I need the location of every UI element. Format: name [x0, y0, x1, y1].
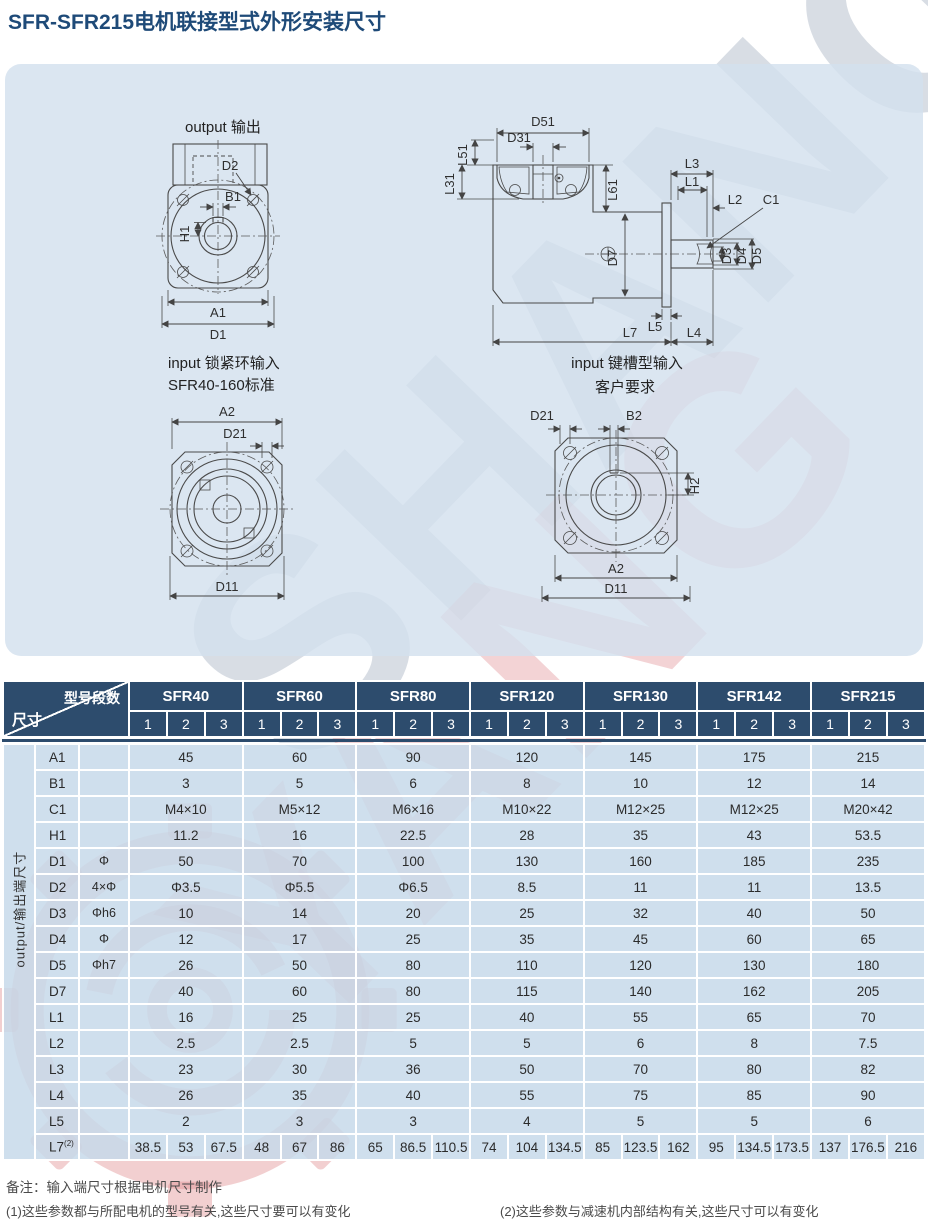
value-cell: 22.5 — [356, 822, 470, 848]
value-cell: 10 — [129, 900, 243, 926]
param-cell: C1 — [35, 796, 79, 822]
model-header-SFR120: SFR120 — [470, 681, 584, 711]
value-cell: 40 — [129, 978, 243, 1004]
symbol-cell: Φh6 — [79, 900, 129, 926]
value-cell: 140 — [584, 978, 698, 1004]
value-cell: 2 — [129, 1108, 243, 1134]
value-cell: 6 — [811, 1108, 925, 1134]
table-row-D7: D7406080115140162205 — [3, 978, 925, 1004]
value-cell: 70 — [243, 848, 357, 874]
value-cell: 145 — [584, 744, 698, 770]
value-cell: 20 — [356, 900, 470, 926]
segment-header: 3 — [773, 711, 811, 737]
spec-table: 型号段数 尺寸 SFR40SFR60SFR80SFR120SFR130SFR14… — [2, 680, 926, 1161]
value-cell: M12×25 — [584, 796, 698, 822]
value-cell: 5 — [584, 1108, 698, 1134]
dim-label-d11: D11 — [605, 581, 628, 596]
segment-header: 2 — [508, 711, 546, 737]
model-header-SFR60: SFR60 — [243, 681, 357, 711]
param-cell: A1 — [35, 744, 79, 770]
segment-header: 3 — [887, 711, 925, 737]
dim-label-a2: A2 — [608, 561, 624, 576]
dim-label-a1: A1 — [210, 305, 226, 320]
dim-label-d31: D31 — [507, 130, 531, 145]
model-header-SFR142: SFR142 — [697, 681, 811, 711]
value-cell: 17 — [243, 926, 357, 952]
value-cell: 5 — [243, 770, 357, 796]
dim-label-l61: L61 — [605, 179, 620, 201]
value-cell: 5 — [356, 1030, 470, 1056]
value-cell: 180 — [811, 952, 925, 978]
value-cell: 8 — [697, 1030, 811, 1056]
dim-label-h1: H1 — [177, 226, 192, 243]
value-cell: 70 — [811, 1004, 925, 1030]
footer-note-1: (1)这些参数都与所配电机的型号有关,这些尺寸要可以有变化 — [6, 1201, 351, 1220]
model-header-SFR130: SFR130 — [584, 681, 698, 711]
drawing-title-line2: 客户要求 — [595, 379, 655, 396]
param-cell: L7(2) — [35, 1134, 79, 1160]
footer-note-2: (2)这些参数与减速机内部结构有关,这些尺寸可以有变化 — [500, 1201, 819, 1220]
value-cell: 5 — [697, 1108, 811, 1134]
dim-label-d2: D2 — [222, 158, 239, 173]
value-cell: 40 — [356, 1082, 470, 1108]
value-cell: 53.5 — [811, 822, 925, 848]
value-cell: 50 — [129, 848, 243, 874]
table-row-L7: L7(2)38.55367.54867866586.5110.574104134… — [3, 1134, 925, 1160]
symbol-cell: 4×Φ — [79, 874, 129, 900]
symbol-cell — [79, 744, 129, 770]
drawing-side-section-view: D51 D31 L51 L31 L61 L3 L1 L2 C1 D7 D3 — [445, 100, 890, 360]
footer-note-main: 备注：输入端尺寸根据电机尺寸制作 — [6, 1176, 222, 1196]
value-cell: 45 — [129, 744, 243, 770]
param-cell: D7 — [35, 978, 79, 1004]
value-cell: 55 — [584, 1004, 698, 1030]
value-cell: 16 — [243, 822, 357, 848]
segment-header: 2 — [622, 711, 660, 737]
value-cell: 67 — [281, 1134, 319, 1160]
value-cell: 173.5 — [773, 1134, 811, 1160]
value-cell: 43 — [697, 822, 811, 848]
symbol-cell — [79, 1056, 129, 1082]
value-cell: 45 — [584, 926, 698, 952]
value-cell: 11 — [584, 874, 698, 900]
segment-header: 1 — [243, 711, 281, 737]
drawing-output-front-view: output 输出 D2 B1 H1 A1 — [130, 106, 410, 354]
table-row-D3: D3Φh610142025324050 — [3, 900, 925, 926]
table-row-L2: L22.52.555687.5 — [3, 1030, 925, 1056]
symbol-cell — [79, 796, 129, 822]
value-cell: 50 — [470, 1056, 584, 1082]
segment-header: 2 — [281, 711, 319, 737]
table-row-A1: output/输出端尺寸A1456090120145175215 — [3, 744, 925, 770]
side-label-output-dimensions: output/输出端尺寸 — [3, 744, 35, 1160]
value-cell: 55 — [470, 1082, 584, 1108]
spec-table-header: 型号段数 尺寸 SFR40SFR60SFR80SFR120SFR130SFR14… — [2, 680, 926, 738]
value-cell: 14 — [811, 770, 925, 796]
value-cell: 3 — [356, 1108, 470, 1134]
corner-label-size: 尺寸 — [12, 709, 42, 730]
drawing-title-line2: SFR40-160标准 — [168, 377, 275, 394]
param-cell: L4 — [35, 1082, 79, 1108]
dim-label-d21: D21 — [530, 408, 554, 423]
symbol-cell: Φ — [79, 926, 129, 952]
value-cell: 26 — [129, 952, 243, 978]
value-cell: 75 — [584, 1082, 698, 1108]
dim-label-d7: D7 — [605, 250, 620, 267]
spec-table-body: output/输出端尺寸A1456090120145175215B1356810… — [2, 743, 926, 1161]
param-cell: H1 — [35, 822, 79, 848]
table-row-D4: D4Φ12172535456065 — [3, 926, 925, 952]
value-cell: 110 — [470, 952, 584, 978]
value-cell: 5 — [470, 1030, 584, 1056]
dim-label-d3: D3 — [719, 248, 734, 265]
value-cell: 115 — [470, 978, 584, 1004]
value-cell: 176.5 — [849, 1134, 887, 1160]
value-cell: 32 — [584, 900, 698, 926]
symbol-cell: Φh7 — [79, 952, 129, 978]
value-cell: 6 — [356, 770, 470, 796]
value-cell: M4×10 — [129, 796, 243, 822]
corner-label-model: 型号段数 — [64, 688, 120, 708]
segment-header: 1 — [697, 711, 735, 737]
value-cell: 65 — [356, 1134, 394, 1160]
dim-label-d21: D21 — [223, 426, 247, 441]
dim-label-d51: D51 — [531, 114, 555, 129]
value-cell: 216 — [887, 1134, 925, 1160]
value-cell: 120 — [470, 744, 584, 770]
value-cell: 35 — [243, 1082, 357, 1108]
symbol-cell — [79, 1030, 129, 1056]
value-cell: 2.5 — [243, 1030, 357, 1056]
value-cell: 50 — [243, 952, 357, 978]
symbol-cell — [79, 1004, 129, 1030]
header-body-divider — [2, 739, 926, 742]
segment-header: 2 — [735, 711, 773, 737]
value-cell: 67.5 — [205, 1134, 243, 1160]
value-cell: 160 — [584, 848, 698, 874]
value-cell: 53 — [167, 1134, 205, 1160]
symbol-cell: Φ — [79, 848, 129, 874]
param-cell: D2 — [35, 874, 79, 900]
segment-header: 1 — [356, 711, 394, 737]
model-header-SFR215: SFR215 — [811, 681, 925, 711]
param-cell: L3 — [35, 1056, 79, 1082]
segment-header: 3 — [318, 711, 356, 737]
segment-header: 3 — [546, 711, 584, 737]
value-cell: 28 — [470, 822, 584, 848]
value-cell: 23 — [129, 1056, 243, 1082]
value-cell: 48 — [243, 1134, 281, 1160]
value-cell: Φ3.5 — [129, 874, 243, 900]
drawing-input-keyway-view: input 键槽型输入 客户要求 D21 B2 H2 A2 — [498, 352, 798, 612]
drawing-title-line1: input 键槽型输入 — [571, 355, 683, 372]
value-cell: 235 — [811, 848, 925, 874]
symbol-cell — [79, 1134, 129, 1160]
value-cell: 65 — [811, 926, 925, 952]
symbol-cell — [79, 1082, 129, 1108]
dim-label-a2: A2 — [219, 404, 235, 419]
value-cell: 12 — [697, 770, 811, 796]
table-row-D1: D1Φ5070100130160185235 — [3, 848, 925, 874]
value-cell: 90 — [356, 744, 470, 770]
value-cell: Φ5.5 — [243, 874, 357, 900]
param-cell: B1 — [35, 770, 79, 796]
value-cell: 86.5 — [394, 1134, 432, 1160]
dim-label-l7: L7 — [623, 325, 637, 340]
dim-label-d11: D11 — [216, 579, 239, 594]
value-cell: 85 — [697, 1082, 811, 1108]
value-cell: 60 — [243, 744, 357, 770]
drawing-title: output 输出 — [185, 119, 261, 136]
value-cell: 162 — [659, 1134, 697, 1160]
value-cell: 123.5 — [622, 1134, 660, 1160]
value-cell: 40 — [697, 900, 811, 926]
value-cell: 11 — [697, 874, 811, 900]
value-cell: 14 — [243, 900, 357, 926]
value-cell: 215 — [811, 744, 925, 770]
dim-label-d5: D5 — [749, 248, 764, 265]
dim-label-b2: B2 — [626, 408, 642, 423]
param-cell: D1 — [35, 848, 79, 874]
symbol-cell — [79, 822, 129, 848]
value-cell: 80 — [356, 978, 470, 1004]
dim-label-l1: L1 — [685, 174, 699, 189]
dim-label-l3: L3 — [685, 156, 699, 171]
symbol-cell — [79, 1108, 129, 1134]
dim-label-l2: L2 — [728, 192, 742, 207]
dim-label-l51: L51 — [455, 144, 470, 166]
value-cell: 134.5 — [546, 1134, 584, 1160]
value-cell: 65 — [697, 1004, 811, 1030]
value-cell: Φ6.5 — [356, 874, 470, 900]
value-cell: 25 — [356, 926, 470, 952]
segment-header: 1 — [584, 711, 622, 737]
param-cell: D4 — [35, 926, 79, 952]
value-cell: 12 — [129, 926, 243, 952]
table-row-L4: L426354055758590 — [3, 1082, 925, 1108]
value-cell: 130 — [697, 952, 811, 978]
value-cell: M6×16 — [356, 796, 470, 822]
value-cell: 90 — [811, 1082, 925, 1108]
page-title: SFR-SFR215电机联接型式外形安装尺寸 — [8, 6, 386, 36]
value-cell: 8.5 — [470, 874, 584, 900]
value-cell: 16 — [129, 1004, 243, 1030]
value-cell: 137 — [811, 1134, 849, 1160]
value-cell: 80 — [697, 1056, 811, 1082]
param-cell: L5 — [35, 1108, 79, 1134]
dim-label-d1: D1 — [210, 327, 227, 342]
segment-header: 3 — [205, 711, 243, 737]
symbol-cell — [79, 770, 129, 796]
param-cell: L1 — [35, 1004, 79, 1030]
segment-header: 1 — [129, 711, 167, 737]
value-cell: 25 — [356, 1004, 470, 1030]
value-cell: 4 — [470, 1108, 584, 1134]
dim-label-l5: L5 — [648, 319, 662, 334]
segment-header: 2 — [849, 711, 887, 737]
value-cell: 74 — [470, 1134, 508, 1160]
value-cell: 120 — [584, 952, 698, 978]
value-cell: 134.5 — [735, 1134, 773, 1160]
table-corner-cell: 型号段数 尺寸 — [3, 681, 129, 737]
value-cell: 60 — [243, 978, 357, 1004]
segment-header: 3 — [432, 711, 470, 737]
value-cell: 175 — [697, 744, 811, 770]
dim-label-b1: B1 — [225, 189, 241, 204]
value-cell: 26 — [129, 1082, 243, 1108]
value-cell: M12×25 — [697, 796, 811, 822]
segment-header: 2 — [394, 711, 432, 737]
value-cell: 70 — [584, 1056, 698, 1082]
value-cell: 60 — [697, 926, 811, 952]
model-header-SFR40: SFR40 — [129, 681, 243, 711]
symbol-cell — [79, 978, 129, 1004]
table-row-C1: C1M4×10M5×12M6×16M10×22M12×25M12×25M20×4… — [3, 796, 925, 822]
value-cell: 86 — [318, 1134, 356, 1160]
value-cell: M10×22 — [470, 796, 584, 822]
value-cell: 10 — [584, 770, 698, 796]
value-cell: 100 — [356, 848, 470, 874]
value-cell: M20×42 — [811, 796, 925, 822]
value-cell: 38.5 — [129, 1134, 167, 1160]
value-cell: 25 — [470, 900, 584, 926]
value-cell: 13.5 — [811, 874, 925, 900]
value-cell: 25 — [243, 1004, 357, 1030]
model-header-SFR80: SFR80 — [356, 681, 470, 711]
value-cell: 3 — [243, 1108, 357, 1134]
value-cell: 95 — [697, 1134, 735, 1160]
value-cell: 50 — [811, 900, 925, 926]
value-cell: 130 — [470, 848, 584, 874]
segment-header: 1 — [811, 711, 849, 737]
value-cell: 36 — [356, 1056, 470, 1082]
segment-header: 2 — [167, 711, 205, 737]
table-row-B1: B13568101214 — [3, 770, 925, 796]
value-cell: 8 — [470, 770, 584, 796]
dim-label-c1: C1 — [763, 192, 780, 207]
value-cell: 110.5 — [432, 1134, 470, 1160]
table-row-L5: L52334556 — [3, 1108, 925, 1134]
value-cell: 162 — [697, 978, 811, 1004]
value-cell: 40 — [470, 1004, 584, 1030]
value-cell: 80 — [356, 952, 470, 978]
value-cell: M5×12 — [243, 796, 357, 822]
value-cell: 104 — [508, 1134, 546, 1160]
table-row-D2: D24×ΦΦ3.5Φ5.5Φ6.58.5111113.5 — [3, 874, 925, 900]
param-cell: L2 — [35, 1030, 79, 1056]
value-cell: 185 — [697, 848, 811, 874]
value-cell: 11.2 — [129, 822, 243, 848]
param-cell: D3 — [35, 900, 79, 926]
dim-label-d4: D4 — [734, 248, 749, 265]
dim-label-l4: L4 — [687, 325, 701, 340]
segment-header: 3 — [659, 711, 697, 737]
value-cell: 35 — [470, 926, 584, 952]
drawing-title-line1: input 锁紧环输入 — [168, 355, 280, 372]
value-cell: 85 — [584, 1134, 622, 1160]
dim-label-h2: H2 — [687, 478, 702, 495]
value-cell: 205 — [811, 978, 925, 1004]
drawing-input-clamp-view: input 锁紧环输入 SFR40-160标准 A2 D21 D11 — [138, 352, 448, 617]
dim-label-l31: L31 — [445, 173, 457, 195]
table-row-H1: H111.21622.528354353.5 — [3, 822, 925, 848]
segment-header: 1 — [470, 711, 508, 737]
table-row-L3: L323303650708082 — [3, 1056, 925, 1082]
value-cell: 3 — [129, 770, 243, 796]
value-cell: 82 — [811, 1056, 925, 1082]
value-cell: 7.5 — [811, 1030, 925, 1056]
value-cell: 2.5 — [129, 1030, 243, 1056]
value-cell: 6 — [584, 1030, 698, 1056]
table-row-L1: L116252540556570 — [3, 1004, 925, 1030]
value-cell: 30 — [243, 1056, 357, 1082]
table-row-D5: D5Φh7265080110120130180 — [3, 952, 925, 978]
param-cell: D5 — [35, 952, 79, 978]
value-cell: 35 — [584, 822, 698, 848]
page: SHANG YANG SFR-SFR215电机联接型式外形安装尺寸 — [0, 0, 928, 1223]
